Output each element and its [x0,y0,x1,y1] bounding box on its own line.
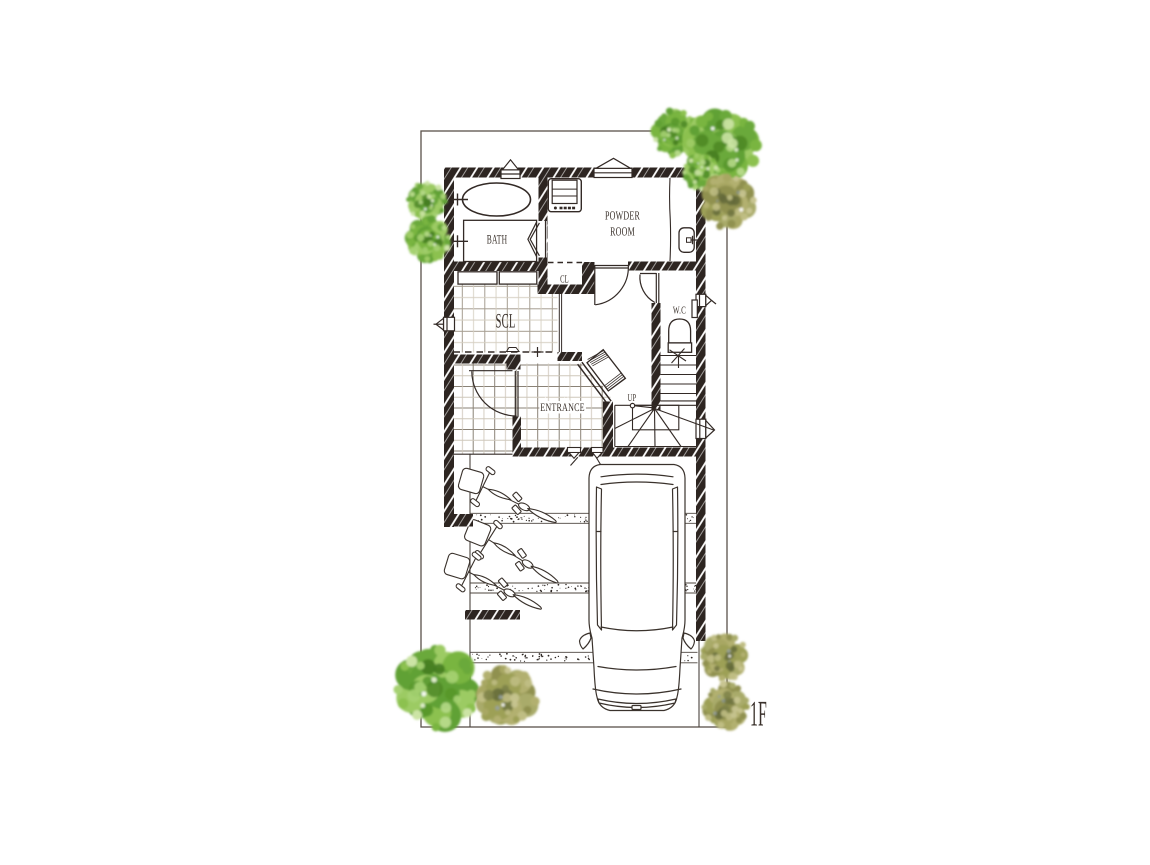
svg-text:CL: CL [560,274,569,286]
svg-text:BATH: BATH [487,232,507,247]
svg-text:POWDER: POWDER [605,209,640,223]
svg-text:SCL: SCL [495,311,515,333]
svg-text:W.C: W.C [673,306,686,317]
svg-text:1F: 1F [750,694,767,734]
svg-text:ENTRANCE: ENTRANCE [540,402,585,414]
svg-text:ROOM: ROOM [610,225,635,239]
svg-text:UP: UP [628,393,637,404]
